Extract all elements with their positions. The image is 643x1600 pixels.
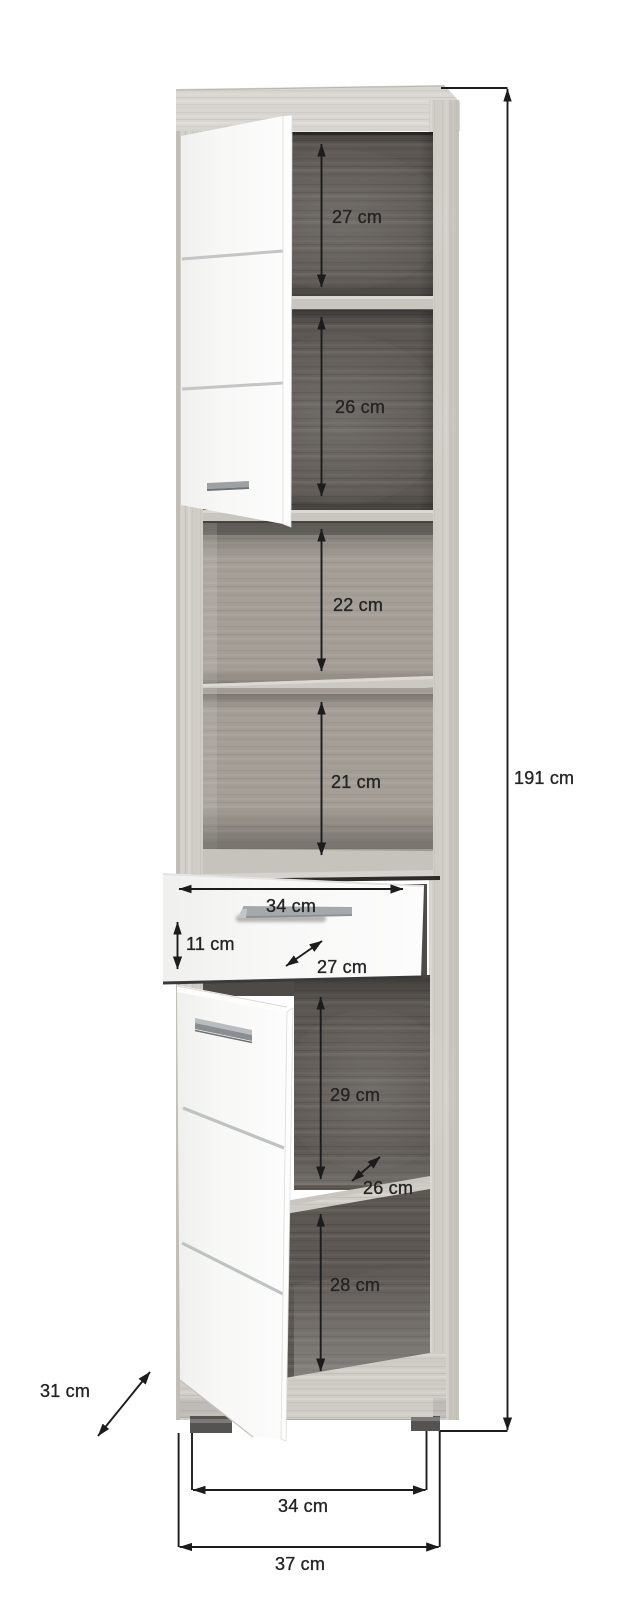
svg-text:22 cm: 22 cm [333, 595, 383, 615]
svg-text:37 cm: 37 cm [275, 1554, 325, 1574]
svg-text:26 cm: 26 cm [363, 1178, 413, 1198]
svg-text:31 cm: 31 cm [40, 1381, 90, 1401]
svg-text:34 cm: 34 cm [278, 1496, 328, 1516]
svg-text:26 cm: 26 cm [335, 397, 385, 417]
svg-text:191 cm: 191 cm [514, 768, 574, 788]
svg-text:34 cm: 34 cm [266, 896, 316, 916]
svg-text:11 cm: 11 cm [186, 934, 235, 954]
svg-text:28 cm: 28 cm [330, 1275, 380, 1295]
svg-text:29 cm: 29 cm [330, 1085, 380, 1105]
svg-text:27 cm: 27 cm [332, 207, 382, 227]
svg-text:27 cm: 27 cm [317, 957, 367, 977]
svg-text:21 cm: 21 cm [331, 772, 381, 792]
